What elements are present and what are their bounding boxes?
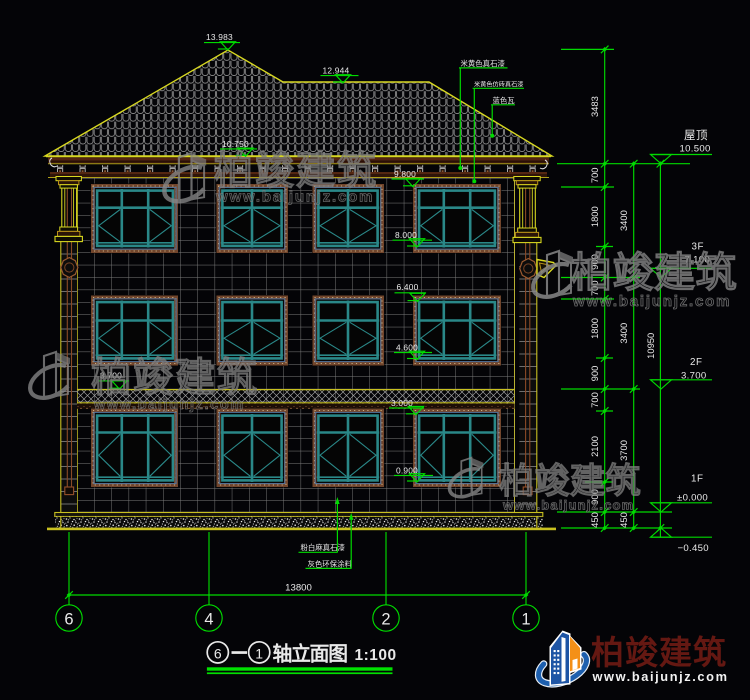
svg-text:10950: 10950 [645,333,656,359]
svg-text:柏竣建筑: 柏竣建筑 [591,634,727,671]
svg-text:2: 2 [381,611,390,629]
svg-text:柏竣建筑: 柏竣建筑 [91,356,259,400]
svg-text:www.baijunjz.com: www.baijunjz.com [572,293,731,310]
svg-text:4: 4 [204,611,213,629]
svg-text:粉白麻真石漆: 粉白麻真石漆 [301,543,346,552]
svg-text:±0.000: ±0.000 [677,492,708,503]
svg-text:屋顶: 屋顶 [684,129,708,142]
svg-text:1F: 1F [691,473,703,484]
svg-text:13800: 13800 [285,582,312,593]
svg-text:3400: 3400 [618,323,629,344]
svg-text:2100: 2100 [589,436,600,457]
svg-text:6.400: 6.400 [397,282,419,292]
svg-text:12.944: 12.944 [323,65,350,75]
svg-text:6: 6 [214,645,222,661]
svg-text:1: 1 [521,611,530,629]
svg-text:3400: 3400 [618,210,629,231]
svg-text:蓝色瓦: 蓝色瓦 [493,96,516,105]
svg-text:www.baijunjz.com: www.baijunjz.com [502,498,634,513]
svg-text:−0.450: −0.450 [678,543,709,554]
svg-text:10.750: 10.750 [222,139,249,149]
svg-text:450: 450 [589,512,600,528]
svg-text:www.baijunjz.com: www.baijunjz.com [592,669,729,684]
svg-text:700: 700 [589,392,600,408]
svg-text:3700: 3700 [618,440,629,461]
svg-text:2F: 2F [690,357,702,368]
svg-text:灰色环保涂料: 灰色环保涂料 [308,559,353,568]
svg-text:米黄色仿砖真石漆: 米黄色仿砖真石漆 [474,81,524,89]
svg-text:13.983: 13.983 [206,32,233,42]
svg-text:1:100: 1:100 [355,647,397,664]
svg-text:10.500: 10.500 [680,143,711,154]
svg-text:柏竣建筑: 柏竣建筑 [571,250,737,296]
svg-text:柏竣建筑: 柏竣建筑 [499,461,641,501]
svg-text:1800: 1800 [589,206,600,227]
svg-text:柏竣建筑: 柏竣建筑 [214,150,378,193]
svg-text:900: 900 [589,366,600,382]
svg-text:1: 1 [255,645,263,661]
svg-text:6: 6 [64,611,73,629]
svg-text:450: 450 [618,512,629,528]
svg-text:www.baijunjz.com: www.baijunjz.com [93,397,245,413]
svg-text:www.baijunjz.com: www.baijunjz.com [215,189,374,206]
svg-text:700: 700 [589,167,600,183]
svg-text:3483: 3483 [589,96,600,117]
svg-text:1800: 1800 [589,318,600,339]
svg-text:米黄色真石漆: 米黄色真石漆 [461,59,506,68]
svg-text:轴立面图: 轴立面图 [273,643,348,666]
svg-text:9.800: 9.800 [394,169,416,179]
